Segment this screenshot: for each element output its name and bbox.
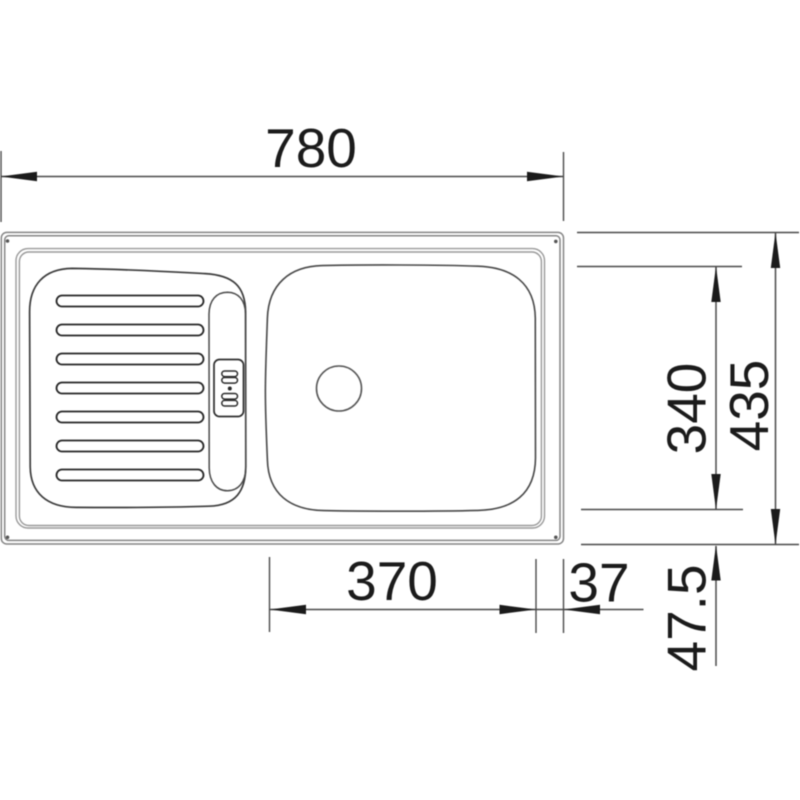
svg-text:37: 37 bbox=[568, 552, 629, 614]
svg-text:340: 340 bbox=[656, 363, 718, 455]
svg-text:47.5: 47.5 bbox=[656, 564, 718, 671]
svg-text:370: 370 bbox=[346, 550, 438, 612]
svg-text:780: 780 bbox=[265, 117, 357, 179]
svg-text:435: 435 bbox=[718, 360, 780, 452]
